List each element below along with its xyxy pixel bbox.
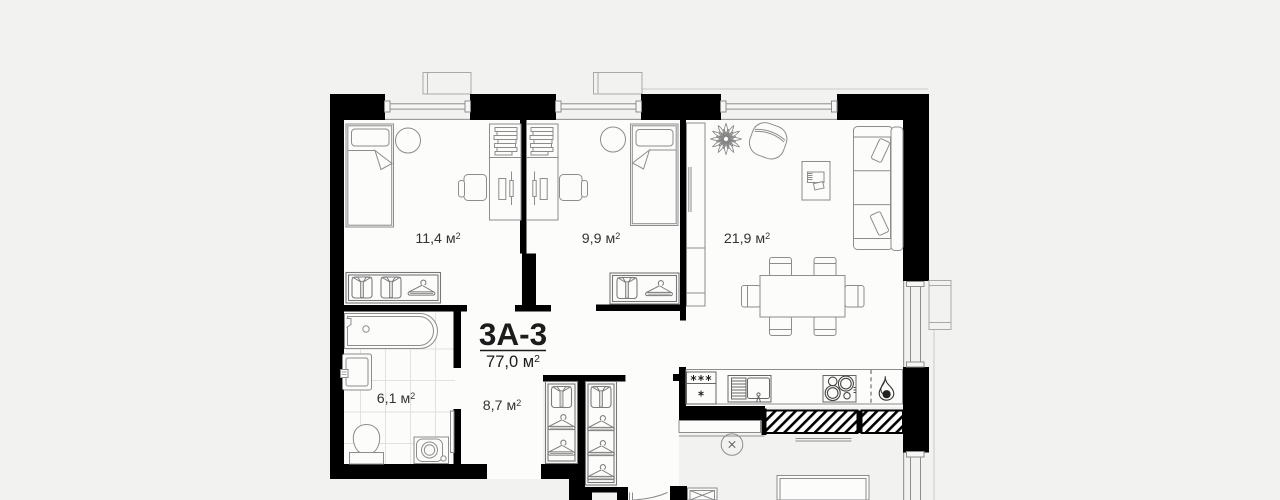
svg-text:8,7 м2: 8,7 м2: [483, 398, 521, 414]
svg-text:9,9 м2: 9,9 м2: [582, 231, 620, 247]
svg-text:3А-3: 3А-3: [479, 316, 547, 352]
svg-text:77,0 м2: 77,0 м2: [486, 353, 540, 371]
svg-text:11,4 м2: 11,4 м2: [415, 231, 460, 247]
svg-text:6,1 м2: 6,1 м2: [377, 391, 415, 407]
svg-text:21,9 м2: 21,9 м2: [724, 231, 770, 247]
